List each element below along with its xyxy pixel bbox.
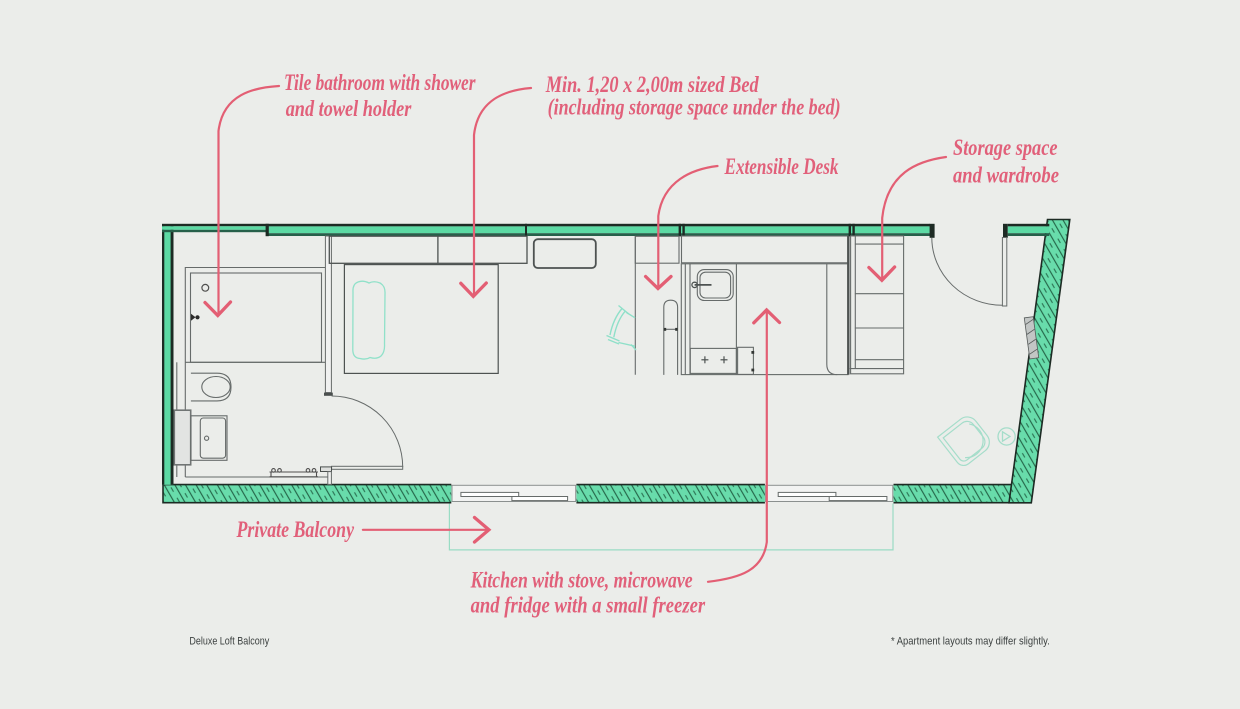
svg-text:Deluxe Loft Balcony: Deluxe Loft Balcony — [189, 635, 269, 647]
svg-text:and fridge with a small freeze: and fridge with a small freezer — [471, 593, 706, 619]
svg-text:* Apartment layouts may differ: * Apartment layouts may differ slightly. — [891, 636, 1050, 648]
svg-text:Extensible Desk: Extensible Desk — [724, 154, 839, 180]
svg-text:(including storage space under: (including storage space under the bed) — [548, 95, 841, 121]
svg-text:Tile bathroom with shower: Tile bathroom with shower — [284, 70, 476, 96]
svg-text:Private Balcony: Private Balcony — [236, 517, 355, 543]
svg-text:Kitchen with stove, microwave: Kitchen with stove, microwave — [470, 568, 693, 594]
svg-text:and wardrobe: and wardrobe — [953, 163, 1059, 189]
svg-text:Storage space: Storage space — [953, 135, 1058, 161]
svg-text:and towel holder: and towel holder — [286, 96, 412, 122]
